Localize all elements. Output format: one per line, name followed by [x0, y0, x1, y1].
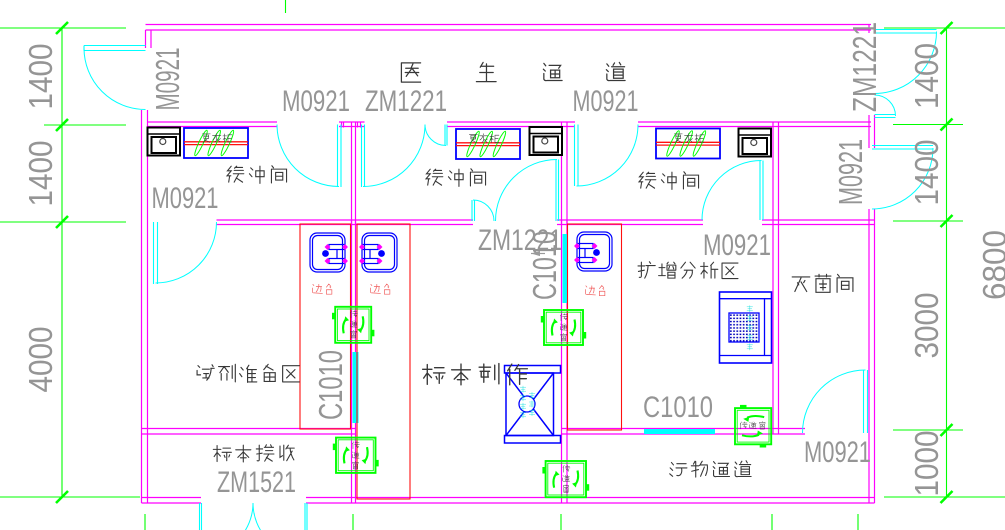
- svg-text:1400: 1400: [22, 44, 59, 110]
- svg-text:1400: 1400: [22, 141, 59, 207]
- svg-text:1400: 1400: [908, 140, 945, 206]
- svg-text:ZM1221: ZM1221: [365, 85, 447, 118]
- svg-text:C1010: C1010: [526, 231, 563, 300]
- svg-text:ZM1521: ZM1521: [217, 466, 296, 499]
- svg-text:C1010: C1010: [643, 391, 713, 424]
- svg-text:4000: 4000: [22, 327, 59, 393]
- svg-text:M0921: M0921: [149, 48, 186, 111]
- svg-text:C1010: C1010: [312, 350, 349, 420]
- svg-text:1400: 1400: [908, 43, 945, 109]
- svg-text:6800: 6800: [976, 230, 1005, 300]
- svg-text:M0921: M0921: [152, 182, 219, 215]
- svg-text:M0921: M0921: [804, 436, 871, 469]
- svg-text:M0921: M0921: [573, 85, 639, 118]
- svg-text:ZM1221: ZM1221: [846, 22, 883, 112]
- svg-text:M0921: M0921: [282, 85, 350, 118]
- svg-text:M0921: M0921: [703, 229, 771, 262]
- svg-text:M0921: M0921: [832, 139, 869, 205]
- svg-text:1000: 1000: [908, 431, 945, 497]
- svg-text:3000: 3000: [908, 293, 945, 359]
